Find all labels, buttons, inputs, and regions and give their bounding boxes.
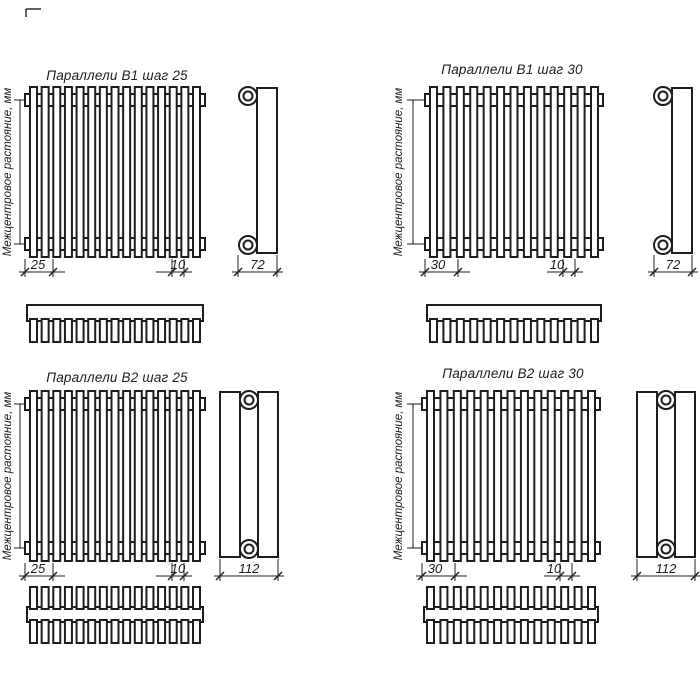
side-body [637,392,657,557]
comb-tooth-back [30,587,37,609]
quadrant-title: Параллели В2 шаг 25 [46,370,188,385]
comb-tooth-front [53,319,60,342]
depth-dimension-label: 112 [239,561,260,576]
tube [470,87,477,257]
axis-label: Межцентровое растояние, мм [393,392,405,561]
comb-tooth-back [146,587,153,609]
gap-dimension: 10 [544,561,580,581]
comb-tooth-front [508,620,515,643]
comb-tooth-front [65,319,72,342]
comb-tooth-front [65,620,72,643]
tube [564,87,571,257]
comb-tooth-front [193,620,200,643]
top-view [27,305,203,342]
comb-tooth-back [100,587,107,609]
tube [561,391,568,561]
comb-tooth-front [534,620,541,643]
port-inner-circle [659,241,668,250]
tube [591,87,598,257]
comb-tooth-front [511,319,518,342]
tube [508,391,515,561]
top-view [424,587,598,643]
tube [588,391,595,561]
side-view [654,87,692,254]
tube [181,87,188,257]
pitch-dimension: 30 [416,561,467,581]
port-inner-circle [662,545,671,554]
tube [30,87,37,257]
center-distance-dimension [407,404,421,548]
top-view [27,587,203,643]
comb-tooth-front [561,620,568,643]
tube [521,391,528,561]
radiator-drawing-sheet: Параллели В1 шаг 25Межцентровое растояни… [0,0,700,700]
comb-tooth-back [548,587,555,609]
comb-tooth-front [123,319,130,342]
comb-tooth-back [521,587,528,609]
comb-tooth-back [494,587,501,609]
tube [575,391,582,561]
comb-tooth-front [158,620,165,643]
technical-drawing: Параллели В1 шаг 25Межцентровое растояни… [0,0,700,700]
top-connection-port [657,391,675,409]
depth-dimension: 112 [631,559,700,581]
gap-dimension-label: 10 [550,257,565,272]
tube [551,87,558,257]
side-body [675,392,695,557]
comb-tooth-front [123,620,130,643]
tube [524,87,531,257]
comb-tooth-front [135,319,142,342]
comb-tooth-back [170,587,177,609]
comb-tooth-front [146,620,153,643]
port-inner-circle [244,241,253,250]
comb-tooth-front [457,319,464,342]
center-distance-dimension [407,100,424,244]
tube [484,87,491,257]
depth-dimension-label: 72 [666,257,681,272]
tube [548,391,555,561]
comb-tooth-front [427,620,434,643]
bottom-connection-port [657,540,675,558]
pitch-dimension-label: 25 [30,561,46,576]
tube [135,87,142,257]
tube [193,391,200,561]
side-view [220,391,278,558]
port-inner-circle [245,396,254,405]
tube [534,391,541,561]
tube [112,87,119,257]
top-connection-port [239,87,257,105]
frame-corner-mark [26,9,41,17]
bottom-connection-port [239,236,257,254]
top-connection-port [240,391,258,409]
depth-dimension-label: 112 [656,561,677,576]
comb-tooth-front [170,620,177,643]
comb-tooth-front [112,319,119,342]
tube [30,391,37,561]
comb-tooth-front [112,620,119,643]
tube [146,87,153,257]
tube [158,87,165,257]
comb-tooth-front [88,319,95,342]
tube [65,391,72,561]
pitch-dimension: 30 [419,257,470,277]
tube [42,87,49,257]
tube [42,391,49,561]
comb-tooth-front [481,620,488,643]
comb-tooth-front [578,319,585,342]
bottom-connection-port [240,540,258,558]
depth-dimension: 72 [648,255,698,277]
comb-tooth-back [427,587,434,609]
port-inner-circle [244,92,253,101]
comb-tooth-front [135,620,142,643]
comb-tooth-front [100,620,107,643]
gap-dimension-label: 10 [171,561,186,576]
comb-tooth-front [430,319,437,342]
tube [77,87,84,257]
side-body [257,88,277,253]
pitch-dimension-label: 30 [431,257,446,272]
axis-label: Межцентровое растояние, мм [2,392,14,561]
comb-tooth-front [588,620,595,643]
comb-tooth-back [135,587,142,609]
tube [457,87,464,257]
comb-tooth-back [65,587,72,609]
tube [443,87,450,257]
front-view [25,391,205,561]
tube [112,391,119,561]
comb-tooth-front [524,319,531,342]
comb-tooth-front [497,319,504,342]
comb-tooth-back [561,587,568,609]
comb-tooth-front [100,319,107,342]
depth-dimension: 112 [214,559,284,581]
tube [481,391,488,561]
port-inner-circle [662,396,671,405]
tube [146,391,153,561]
gap-dimension: 10 [547,257,583,277]
comb-tooth-back [440,587,447,609]
tube [135,391,142,561]
quadrant-3: Параллели В2 шаг 25Межцентровое растояни… [2,370,284,643]
comb-tooth-front [77,620,84,643]
comb-tooth-back [454,587,461,609]
side-body [220,392,240,557]
comb-tooth-back [508,587,515,609]
comb-tooth-front [88,620,95,643]
comb-tooth-back [481,587,488,609]
tube [454,391,461,561]
comb-tooth-front [591,319,598,342]
comb-tooth-front [440,620,447,643]
comb-tooth-back [42,587,49,609]
depth-dimension-label: 72 [250,257,265,272]
gap-dimension: 10 [156,257,192,277]
pitch-dimension-label: 30 [428,561,443,576]
comb-tooth-front [454,620,461,643]
top-view [427,305,601,342]
comb-tooth-front [30,620,37,643]
comb-tooth-back [77,587,84,609]
gap-dimension: 10 [156,561,192,581]
tube [494,391,501,561]
comb-tooth-front [193,319,200,342]
comb-tooth-front [484,319,491,342]
comb-tooth-back [53,587,60,609]
quadrant-title: Параллели В1 шаг 25 [46,68,188,83]
comb-tooth-front [181,319,188,342]
tube [430,87,437,257]
comb-tooth-back [123,587,130,609]
comb-tooth-back [88,587,95,609]
tube [158,391,165,561]
tube [100,87,107,257]
tube [511,87,518,257]
side-view [637,391,695,558]
comb-tooth-front [181,620,188,643]
comb-tooth-front [564,319,571,342]
comb-tooth-back [181,587,188,609]
comb-tooth-front [158,319,165,342]
center-distance-dimension [14,404,24,548]
port-inner-circle [659,92,668,101]
tube [467,391,474,561]
quadrant-1: Параллели В1 шаг 25Межцентровое растояни… [2,68,283,342]
pitch-dimension: 25 [19,257,65,277]
comb-tooth-front [53,620,60,643]
port-inner-circle [245,545,254,554]
front-view [25,87,205,257]
comb-tooth-back [575,587,582,609]
comb-tooth-front [42,319,49,342]
tube [88,391,95,561]
comb-tooth-front [170,319,177,342]
comb-tooth-front [548,620,555,643]
comb-tooth-front [146,319,153,342]
side-view [239,87,277,254]
comb-tooth-front [551,319,558,342]
tube [170,391,177,561]
depth-dimension: 72 [232,255,283,277]
comb-tooth-front [575,620,582,643]
quadrant-2: Параллели В1 шаг 30Межцентровое растояни… [393,62,698,342]
axis-label: Межцентровое растояние, мм [393,88,405,257]
tube [100,391,107,561]
tube [77,391,84,561]
comb-tooth-front [494,620,501,643]
comb-tooth-front [30,319,37,342]
comb-tooth-front [42,620,49,643]
pitch-dimension-label: 25 [30,257,46,272]
comb-tooth-front [470,319,477,342]
gap-dimension-label: 10 [547,561,562,576]
tube [65,87,72,257]
top-connection-port [654,87,672,105]
tube [578,87,585,257]
comb-tooth-back [588,587,595,609]
pitch-dimension: 25 [19,561,65,581]
tube [123,391,130,561]
comb-tooth-back [112,587,119,609]
comb-tooth-front [537,319,544,342]
tube [497,87,504,257]
quadrant-title: Параллели В1 шаг 30 [441,62,583,77]
comb-tooth-back [534,587,541,609]
comb-tooth-back [158,587,165,609]
gap-dimension-label: 10 [171,257,186,272]
tube [537,87,544,257]
axis-label: Межцентровое растояние, мм [2,88,14,257]
tube [427,391,434,561]
tube [123,87,130,257]
comb-tooth-front [77,319,84,342]
comb-tooth-front [467,620,474,643]
quadrant-title: Параллели В2 шаг 30 [442,366,584,381]
quadrant-4: Параллели В2 шаг 30Межцентровое растояни… [393,366,700,643]
tube [53,391,60,561]
tube [170,87,177,257]
tube [181,391,188,561]
comb-tooth-front [443,319,450,342]
comb-tooth-front [521,620,528,643]
comb-tooth-back [467,587,474,609]
tube [440,391,447,561]
tube [193,87,200,257]
center-distance-dimension [14,100,24,244]
side-body [672,88,692,253]
front-view [422,391,600,561]
front-view [425,87,603,257]
side-body [258,392,278,557]
tube [53,87,60,257]
comb-tooth-back [193,587,200,609]
bottom-connection-port [654,236,672,254]
tube [88,87,95,257]
